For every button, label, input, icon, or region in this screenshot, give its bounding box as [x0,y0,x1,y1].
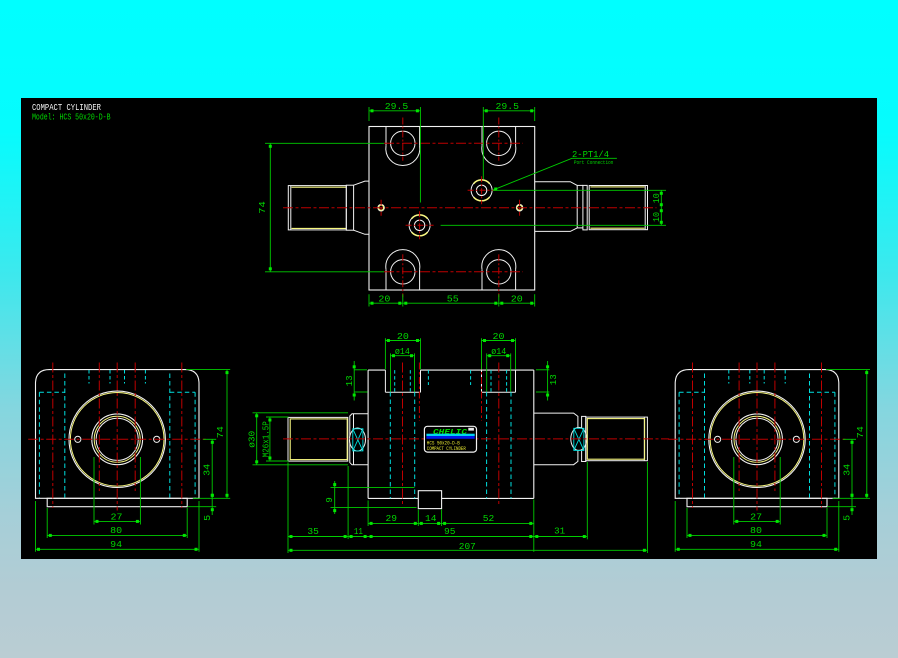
svg-text:95: 95 [444,527,456,537]
svg-text:74: 74 [258,201,268,214]
svg-text:94: 94 [750,540,762,550]
svg-text:9: 9 [325,497,335,503]
svg-text:COMPACT CYLINDER: COMPACT CYLINDER [32,102,101,113]
svg-text:10: 10 [652,193,662,203]
svg-text:M26x1.5P: M26x1.5P [261,421,271,457]
svg-text:80: 80 [110,526,122,536]
svg-text:Port Connection: Port Connection [574,159,614,166]
svg-text:207: 207 [459,542,476,552]
svg-text:ø14: ø14 [491,347,506,357]
svg-text:5: 5 [843,515,853,521]
svg-text:34: 34 [203,464,213,476]
svg-text:5: 5 [203,515,213,521]
svg-text:52: 52 [483,514,495,524]
svg-text:29.5: 29.5 [496,102,520,112]
svg-text:29: 29 [386,514,398,524]
svg-text:74: 74 [856,426,866,438]
svg-text:94: 94 [110,540,122,550]
svg-text:55: 55 [447,295,459,305]
svg-text:34: 34 [842,464,852,476]
svg-text:Model: HCS 50x20-D-B: Model: HCS 50x20-D-B [32,113,111,123]
svg-text:ø14: ø14 [395,347,410,357]
svg-text:20: 20 [378,294,390,304]
svg-text:COMPACT CYLINDER: COMPACT CYLINDER [427,446,466,452]
svg-text:35: 35 [307,527,319,537]
svg-text:11: 11 [354,527,363,537]
svg-text:27: 27 [750,512,762,522]
svg-text:74: 74 [216,426,226,438]
svg-text:20: 20 [397,332,409,342]
svg-text:20: 20 [511,294,523,304]
svg-text:14: 14 [425,514,437,524]
svg-text:80: 80 [750,526,762,536]
svg-text:13: 13 [345,375,355,386]
svg-text:27: 27 [111,512,123,522]
svg-text:13: 13 [549,374,559,385]
svg-text:29.5: 29.5 [385,102,409,112]
svg-text:10: 10 [652,212,662,222]
svg-text:ø30: ø30 [248,431,258,448]
svg-text:31: 31 [554,526,565,536]
svg-text:20: 20 [493,332,505,342]
